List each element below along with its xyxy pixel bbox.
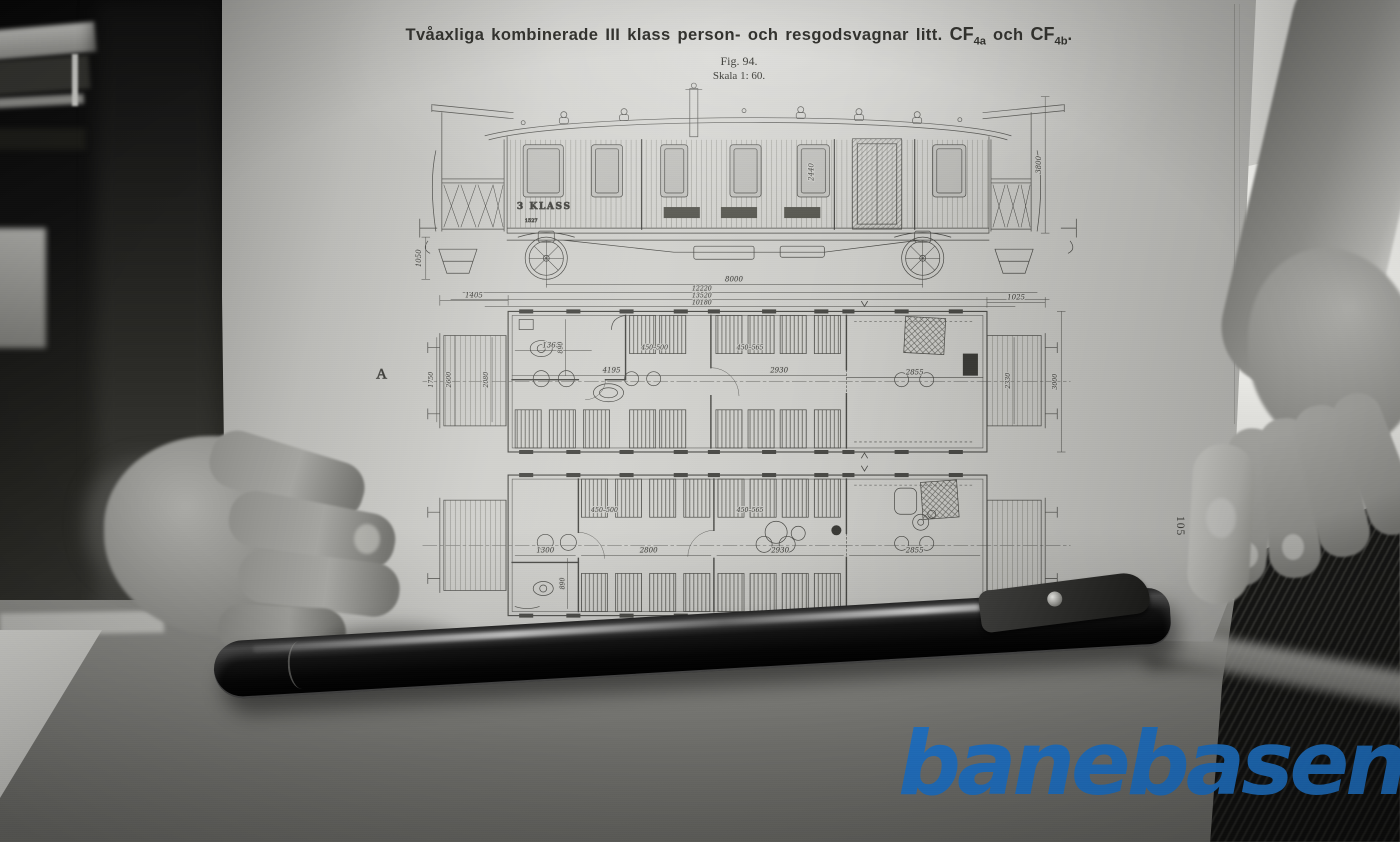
photograph: 3 KLASS 1527 — [0, 0, 1400, 842]
title-text: Tvåaxliga kombinerade III klass person- … — [405, 26, 942, 44]
luggage-area — [831, 480, 975, 606]
scale-caption: Skala 1: 60. — [222, 70, 1256, 82]
car-class-text: 3 KLASS — [517, 202, 572, 212]
title-conjunction: och — [993, 26, 1024, 44]
dimension-label: 1405 — [465, 290, 483, 299]
shelf-edge — [0, 128, 86, 150]
dimension-label: 2330 — [1005, 373, 1012, 390]
dimension-label: 1025 — [1007, 292, 1025, 301]
plan-view-a: A — [376, 290, 1070, 458]
dimension-label: 890 — [557, 342, 564, 354]
dimension-label: 12220 — [692, 285, 712, 292]
dimension-label: 3000 — [1052, 374, 1059, 390]
page-title: Tvåaxliga kombinerade III klass person- … — [222, 24, 1256, 48]
dimension-label: 2855 — [905, 368, 924, 377]
end-platform-left — [432, 113, 504, 231]
litt-cf4b: CF4b — [1031, 24, 1068, 44]
dimension-label: 450–565 — [736, 507, 764, 514]
dimension-label: 2930 — [769, 366, 788, 375]
fingernail — [354, 524, 380, 554]
dimension-label: 450–565 — [736, 345, 764, 352]
dimension-label: 2800 — [639, 545, 658, 554]
dimension-label: 2930 — [770, 545, 789, 554]
dimension-label: 1750 — [428, 372, 435, 388]
litt-cf4a: CF4a — [950, 24, 986, 44]
dimension-label: 2080 — [483, 372, 490, 389]
dimension-label: 13520 — [692, 292, 712, 299]
luggage-area — [854, 316, 977, 442]
underframe — [507, 240, 989, 259]
interior-benches — [664, 207, 821, 218]
roof-vents — [521, 107, 962, 125]
watermark: banebasen — [898, 712, 1400, 815]
figure-caption: Fig. 94. — [222, 54, 1256, 69]
shelf-box — [0, 228, 46, 348]
dimension-label: 8000 — [725, 274, 743, 283]
wc-compartment — [512, 562, 578, 611]
left-hand — [96, 428, 416, 663]
dimension-label: 2600 — [446, 372, 453, 389]
dimension-label: 4195 — [602, 366, 621, 375]
page-number: 105 — [1174, 516, 1186, 536]
wc-compartment — [512, 315, 625, 399]
dimension-label: 1050 — [414, 249, 423, 267]
sliding-door — [852, 139, 901, 229]
dimension-label: 1300 — [536, 545, 554, 554]
dimension-label: 890 — [559, 578, 566, 590]
dimension-label: 450–500 — [590, 507, 618, 514]
dimension-label: 2440 — [806, 162, 815, 181]
fingernail — [1282, 534, 1304, 560]
car-number: 1527 — [525, 218, 538, 224]
shelf-object — [72, 54, 78, 106]
thumbnail — [1206, 498, 1236, 538]
dimension-label: 450–500 — [640, 345, 668, 352]
dimension-label: 10180 — [692, 299, 712, 306]
side-elevation-view: 3 KLASS 1527 — [414, 83, 1077, 306]
view-a-label: A — [376, 367, 387, 383]
dimension-label: 3800 — [1034, 155, 1043, 173]
dimension-label: 2855 — [905, 545, 924, 554]
